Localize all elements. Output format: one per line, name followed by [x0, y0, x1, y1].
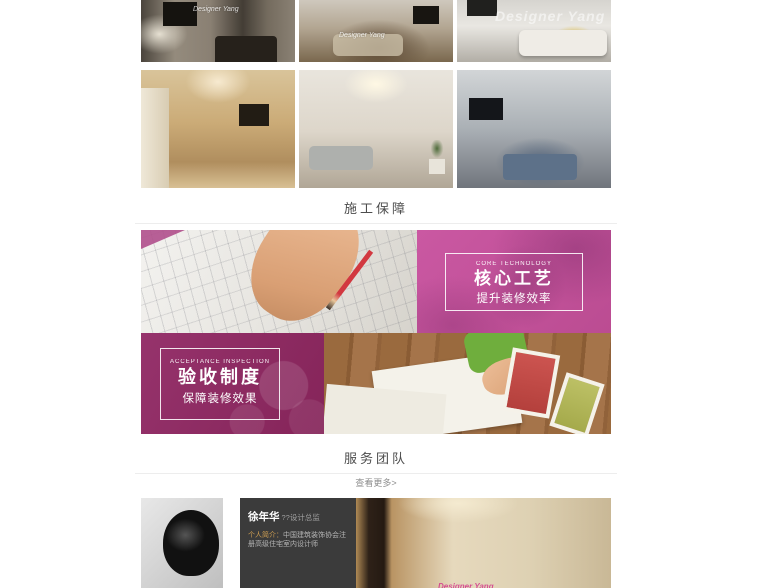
hand-illustration	[232, 230, 379, 333]
photo-watermark: Designer Yang	[193, 6, 239, 13]
sofa-shape	[215, 36, 277, 62]
tv-screen	[413, 6, 439, 24]
gallery-photo-dining-room[interactable]: Designer Yang	[299, 0, 453, 62]
plant-shape	[429, 140, 445, 174]
tv-screen	[467, 0, 497, 16]
gallery-grid-row-2	[141, 70, 611, 188]
cabinet-shape	[141, 88, 169, 188]
core-technology-box: CORE TECHNOLOGY 核心工艺 提升装修效率	[445, 253, 583, 311]
red-swatch-card	[502, 347, 560, 418]
banner-subheading: 提升装修效率	[446, 290, 582, 306]
team-member-card[interactable]: 徐年华??设计总监 个人简介：中国建筑装饰协会注册高级住宅室内设计师 Desig…	[141, 498, 611, 588]
section-title-team: 服务团队	[141, 452, 611, 466]
banner-subheading: 保障装修效果	[161, 390, 279, 406]
member-name: 徐年华	[248, 511, 280, 523]
tv-screen	[469, 98, 503, 120]
gallery-photo-bright-living[interactable]: Designer Yang	[457, 0, 611, 62]
core-technology-panel: CORE TECHNOLOGY 核心工艺 提升装修效率	[417, 230, 611, 333]
banner-heading: 核心工艺	[446, 269, 582, 288]
green-swatch-card	[549, 372, 604, 434]
ottoman-shape	[503, 154, 577, 180]
member-bio: 个人简介：中国建筑装饰协会注册高级住宅室内设计师	[248, 531, 348, 549]
member-info-panel: 徐年华??设计总监 个人简介：中国建筑装饰协会注册高级住宅室内设计师	[240, 498, 356, 588]
sofa-shape	[309, 146, 373, 170]
bio-label: 个人简介：	[248, 532, 283, 539]
construction-banner: CORE TECHNOLOGY 核心工艺 提升装修效率 ACCEPTANCE I…	[141, 230, 611, 434]
photo-watermark: Designer Yang	[438, 582, 494, 588]
portrait-head-shape	[163, 510, 219, 576]
team-work-photo: Designer Yang	[356, 498, 611, 588]
photo-watermark: Designer Yang	[495, 8, 605, 24]
card-gap	[223, 498, 240, 588]
tv-screen	[163, 2, 197, 26]
banner-tagline: CORE TECHNOLOGY	[446, 261, 582, 267]
banner-heading: 验收制度	[161, 368, 279, 387]
gallery-grid-row-1: Designer Yang Designer Yang Designer Yan…	[141, 0, 611, 62]
team-portrait-photo	[141, 498, 223, 588]
page-content: Designer Yang Designer Yang Designer Yan…	[141, 0, 611, 588]
gallery-photo-cream-living[interactable]	[299, 70, 453, 188]
gallery-photo-gold-european[interactable]	[141, 70, 295, 188]
banner-tagline: ACCEPTANCE INSPECTION	[161, 359, 279, 365]
gallery-photo-living-dark[interactable]: Designer Yang	[141, 0, 295, 62]
section-divider	[135, 473, 617, 474]
banner-row-bottom: ACCEPTANCE INSPECTION 验收制度 保障装修效果	[141, 333, 611, 434]
section-title-construction: 施工保障	[141, 202, 611, 216]
color-swatch-photo	[324, 333, 611, 434]
acceptance-box: ACCEPTANCE INSPECTION 验收制度 保障装修效果	[160, 348, 280, 420]
section-divider	[135, 223, 617, 224]
tv-screen	[239, 104, 269, 126]
sofa-shape	[519, 30, 607, 56]
banner-row-top: CORE TECHNOLOGY 核心工艺 提升装修效率	[141, 230, 611, 333]
view-more-link[interactable]: 查看更多>	[141, 478, 611, 489]
page-root: Designer Yang Designer Yang Designer Yan…	[0, 0, 760, 537]
gallery-photo-modern-gray[interactable]	[457, 70, 611, 188]
acceptance-panel: ACCEPTANCE INSPECTION 验收制度 保障装修效果	[141, 333, 324, 434]
member-title: ??设计总监	[282, 513, 320, 522]
chairs-shape	[333, 34, 403, 56]
blueprint-photo	[141, 230, 417, 333]
member-name-line: 徐年华??设计总监	[248, 507, 348, 525]
